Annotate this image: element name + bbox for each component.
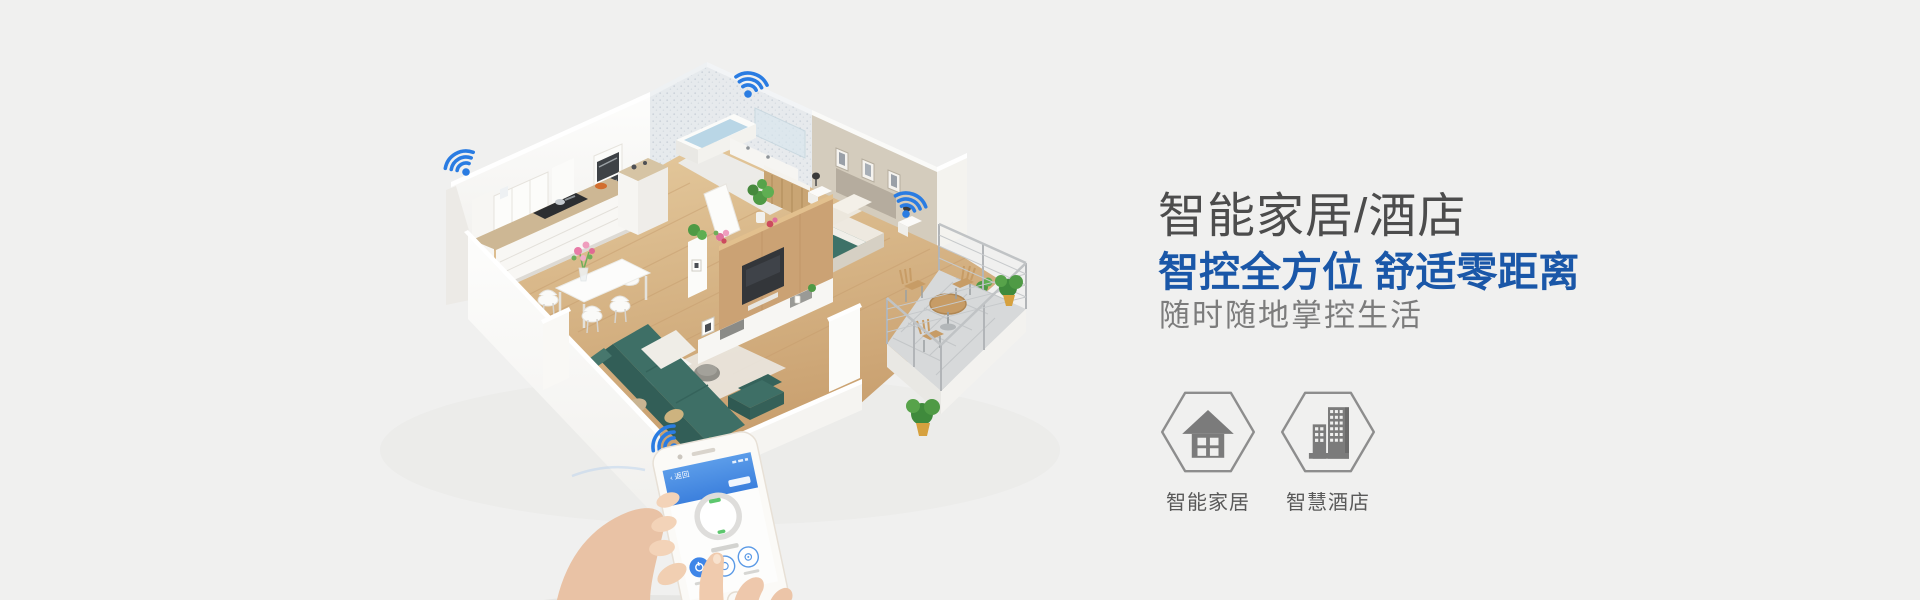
category-label: 智慧酒店 bbox=[1286, 486, 1370, 515]
hero-tagline: 随时随地掌控生活 bbox=[1159, 290, 1423, 335]
hexagon-badge bbox=[1280, 390, 1376, 474]
hero-headline: 智控全方位 舒适零距离 bbox=[1158, 238, 1579, 298]
hotel-buildings-icon bbox=[1309, 407, 1349, 459]
fruit-dish bbox=[595, 183, 607, 189]
category-smart-hotel[interactable]: 智慧酒店 bbox=[1280, 390, 1376, 515]
category-label: 智能家居 bbox=[1166, 486, 1250, 515]
shelf-column bbox=[688, 224, 707, 298]
category-row: 智能家居 bbox=[1160, 390, 1376, 515]
house-icon bbox=[1182, 410, 1234, 458]
banner: ‹ 返回 bbox=[0, 0, 1920, 600]
hero-title: 智能家居/酒店 bbox=[1158, 176, 1466, 246]
hexagon-badge bbox=[1160, 390, 1256, 474]
category-smart-home[interactable]: 智能家居 bbox=[1160, 390, 1256, 515]
forearm bbox=[556, 508, 665, 600]
apartment-illustration: ‹ 返回 bbox=[0, 0, 1920, 600]
fingernail bbox=[713, 554, 721, 564]
kitchen-peninsula bbox=[618, 158, 668, 235]
